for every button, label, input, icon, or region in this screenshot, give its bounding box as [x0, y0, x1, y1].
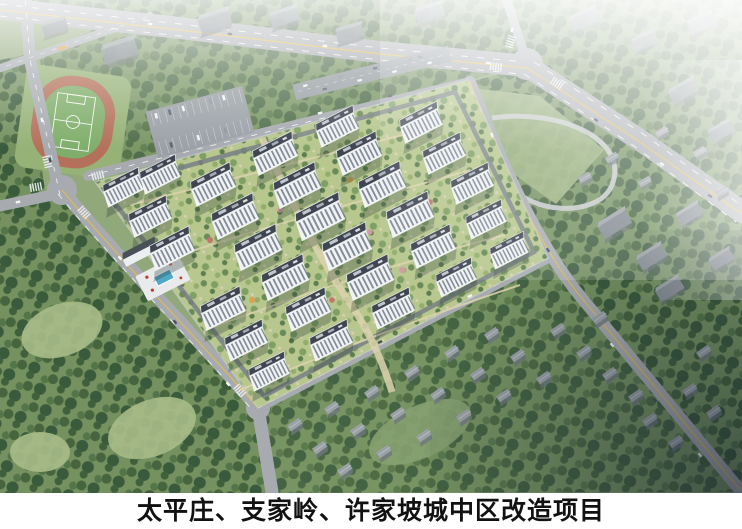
project-title: 太平庄、支家岭、许家坡城中区改造项目: [137, 493, 605, 529]
vignette-bottom-right: [430, 230, 742, 493]
caption-bar: 太平庄、支家岭、许家坡城中区改造项目: [0, 493, 742, 529]
rendering-page: 太平庄、支家岭、许家坡城中区改造项目: [0, 0, 742, 529]
aerial-rendering: [0, 0, 742, 493]
